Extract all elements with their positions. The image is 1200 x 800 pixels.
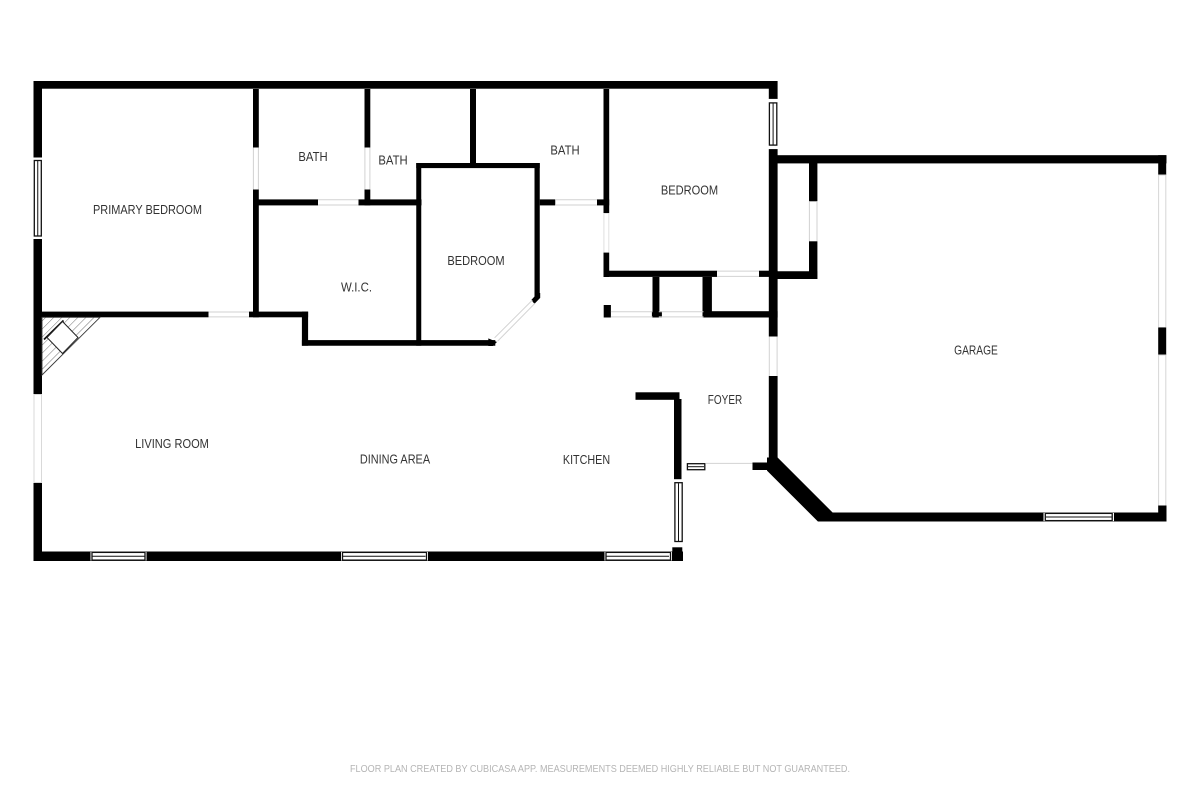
- svg-text:BEDROOM: BEDROOM: [661, 184, 718, 198]
- svg-text:LIVING ROOM: LIVING ROOM: [135, 437, 209, 451]
- svg-text:BEDROOM: BEDROOM: [447, 254, 504, 268]
- svg-text:FLOOR PLAN CREATED BY CUBICASA: FLOOR PLAN CREATED BY CUBICASA APP. MEAS…: [350, 763, 850, 775]
- svg-text:BATH: BATH: [550, 144, 579, 158]
- svg-text:DINING AREA: DINING AREA: [360, 453, 431, 467]
- svg-text:PRIMARY BEDROOM: PRIMARY BEDROOM: [93, 203, 202, 217]
- svg-text:FOYER: FOYER: [708, 393, 742, 407]
- svg-text:BATH: BATH: [378, 154, 407, 168]
- svg-text:BATH: BATH: [298, 150, 327, 164]
- svg-text:GARAGE: GARAGE: [954, 344, 998, 358]
- svg-text:W.I.C.: W.I.C.: [341, 280, 372, 294]
- svg-text:KITCHEN: KITCHEN: [563, 453, 610, 467]
